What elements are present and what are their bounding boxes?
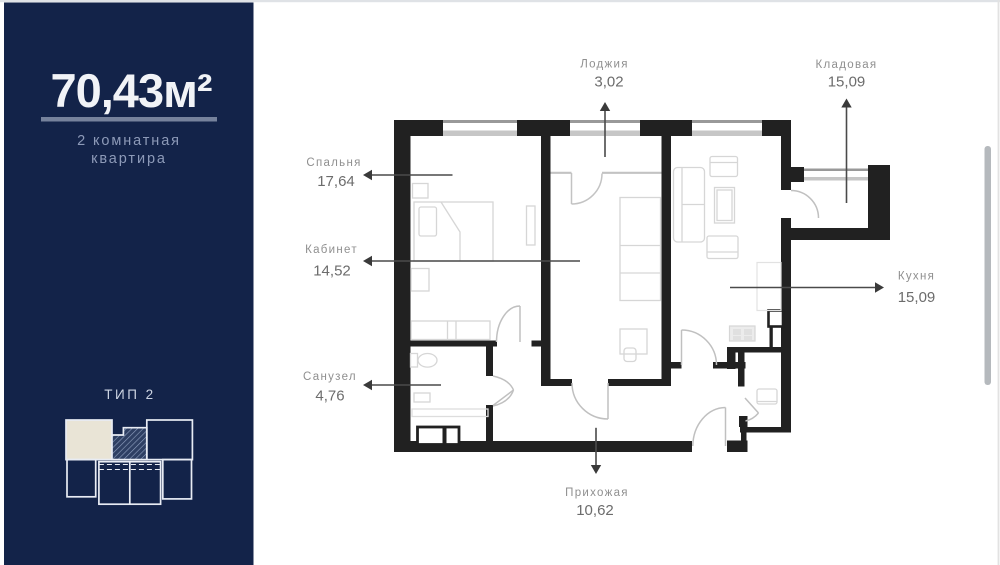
svg-text:Кладовая: Кладовая	[816, 59, 878, 71]
svg-text:70,43м²: 70,43м²	[50, 64, 211, 117]
svg-text:Прихожая: Прихожая	[565, 487, 629, 499]
svg-text:4,76: 4,76	[315, 388, 344, 405]
svg-text:3,02: 3,02	[594, 74, 623, 91]
svg-text:Санузел: Санузел	[303, 371, 357, 383]
svg-text:10,62: 10,62	[576, 502, 614, 519]
svg-text:Спальня: Спальня	[306, 157, 361, 169]
svg-text:15,09: 15,09	[828, 74, 866, 91]
svg-text:15,09: 15,09	[898, 289, 936, 306]
svg-text:17,64: 17,64	[317, 173, 355, 190]
svg-text:Лоджия: Лоджия	[580, 59, 629, 71]
svg-text:Кабинет: Кабинет	[305, 244, 358, 256]
svg-text:квартира: квартира	[91, 151, 167, 167]
svg-text:ТИП 2: ТИП 2	[104, 387, 155, 402]
svg-text:Кухня: Кухня	[898, 271, 935, 283]
svg-text:14,52: 14,52	[313, 263, 351, 280]
svg-text:2 комнатная: 2 комнатная	[77, 133, 181, 149]
